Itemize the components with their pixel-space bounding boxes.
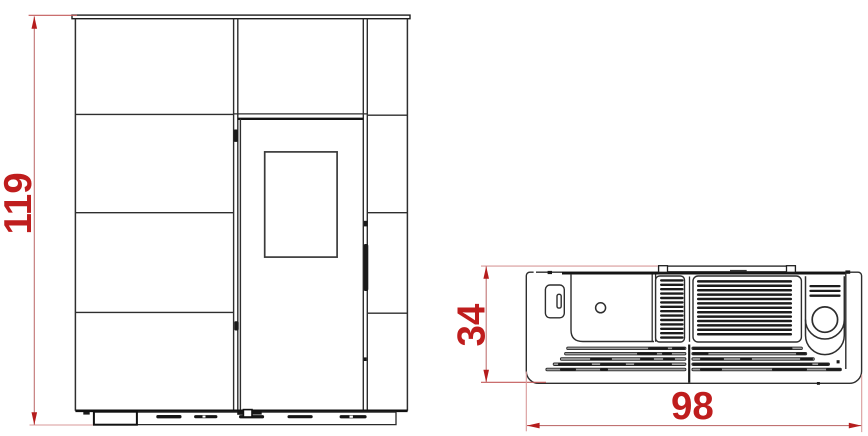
svg-text:119: 119 — [0, 172, 40, 234]
svg-text:98: 98 — [671, 385, 714, 428]
svg-text:34: 34 — [451, 303, 494, 346]
